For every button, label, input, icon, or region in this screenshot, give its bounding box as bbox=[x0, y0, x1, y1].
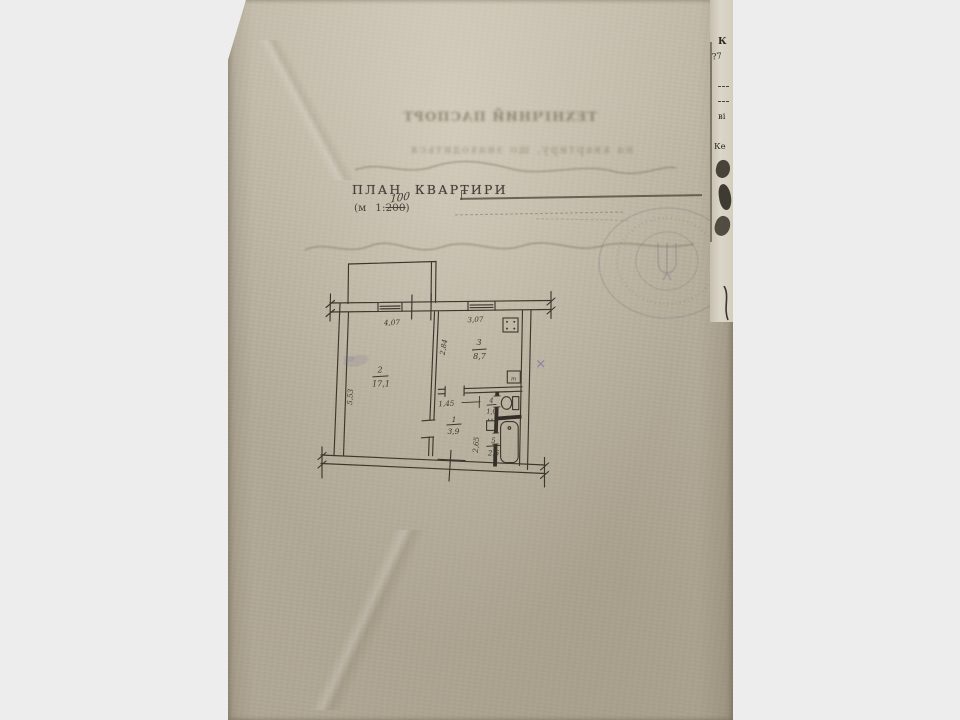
room1-area: 3,9 bbox=[448, 427, 460, 436]
room5-number: 5 bbox=[491, 437, 496, 445]
window-symbol-kitchen bbox=[468, 302, 495, 311]
dim-hall-width: 1,45 bbox=[438, 399, 455, 409]
floor-plan-drawing: 4,07 3,07 5,53 2,84 1,45 2,65 2 17,1 3 8… bbox=[315, 250, 570, 500]
dim-width-right: 3,07 bbox=[467, 315, 484, 325]
bathtub-icon bbox=[501, 422, 519, 463]
room2-area: 17,1 bbox=[372, 380, 390, 389]
window-symbol-room2 bbox=[378, 303, 402, 312]
strip-dash bbox=[718, 86, 729, 87]
room4-number: 4 bbox=[488, 397, 493, 405]
trident-emblem-icon bbox=[658, 243, 676, 280]
plan-title: ПЛАН КВАРТИРИ bbox=[352, 182, 508, 197]
room-label-hall: 1 3,9 bbox=[447, 415, 462, 436]
room1-number: 1 bbox=[452, 415, 457, 424]
scale-open: (м bbox=[354, 202, 366, 214]
faded-rule bbox=[455, 212, 623, 216]
dim-height-left: 5,53 bbox=[345, 388, 355, 405]
underlying-page-edge: К ?7 ві Ке bbox=[710, 0, 733, 322]
scale-close: ) bbox=[406, 202, 410, 214]
toilet-icon bbox=[501, 397, 519, 410]
ink-blot bbox=[712, 214, 733, 238]
strip-text-fragment: Ке bbox=[714, 142, 726, 152]
scale-ratio: 1: bbox=[375, 202, 385, 214]
paper-crease bbox=[228, 40, 378, 180]
bleed-through-handwriting bbox=[350, 156, 680, 180]
dim-kitchen-height: 2,84 bbox=[438, 338, 450, 357]
ink-blot bbox=[714, 159, 732, 180]
strip-dash bbox=[718, 101, 729, 102]
strip-text-fragment: ві bbox=[718, 112, 726, 122]
room4-area: 1,0 bbox=[486, 408, 496, 416]
dim-width-left: 4,07 bbox=[383, 318, 401, 328]
room5-area: 2,6 bbox=[487, 450, 500, 458]
purple-check-mark bbox=[538, 361, 545, 368]
paper-sheet: ТЕХНІЧНИЙ ПАСПОРТ на квартиру, що знаход… bbox=[228, 0, 733, 720]
room-label-kitchen: 3 8,7 bbox=[472, 338, 487, 361]
sink-letter: т bbox=[511, 377, 516, 383]
page-edge-shadow bbox=[710, 42, 712, 242]
stove-icon bbox=[503, 318, 518, 332]
dim-bath-height: 2,65 bbox=[471, 436, 481, 454]
bleed-through-title: ТЕХНІЧНИЙ ПАСПОРТ bbox=[437, 110, 597, 125]
ink-blot bbox=[717, 183, 733, 210]
strip-text-fragment: ?7 bbox=[712, 52, 723, 63]
faded-rule bbox=[536, 218, 628, 221]
page-edge-curve bbox=[721, 286, 733, 322]
paper-crease bbox=[228, 530, 498, 710]
bleed-through-subtitle: на квартиру, що знаходиться bbox=[365, 143, 677, 156]
room2-number: 2 bbox=[376, 366, 382, 375]
strip-text-fragment: К bbox=[718, 36, 727, 47]
room-label-living: 2 17,1 bbox=[372, 366, 390, 389]
scanned-document-photo: ТЕХНІЧНИЙ ПАСПОРТ на квартиру, що знаход… bbox=[0, 0, 960, 720]
room3-area: 8,7 bbox=[473, 352, 487, 361]
plan-dimension-labels: 4,07 3,07 5,53 2,84 1,45 2,65 bbox=[345, 315, 484, 454]
balcony-outline bbox=[348, 262, 436, 304]
room-label-wc: 4 1,0 bbox=[486, 397, 496, 416]
room3-number: 3 bbox=[476, 338, 481, 347]
plan-walls bbox=[318, 262, 555, 488]
paper-corner-cut bbox=[221, 0, 243, 62]
